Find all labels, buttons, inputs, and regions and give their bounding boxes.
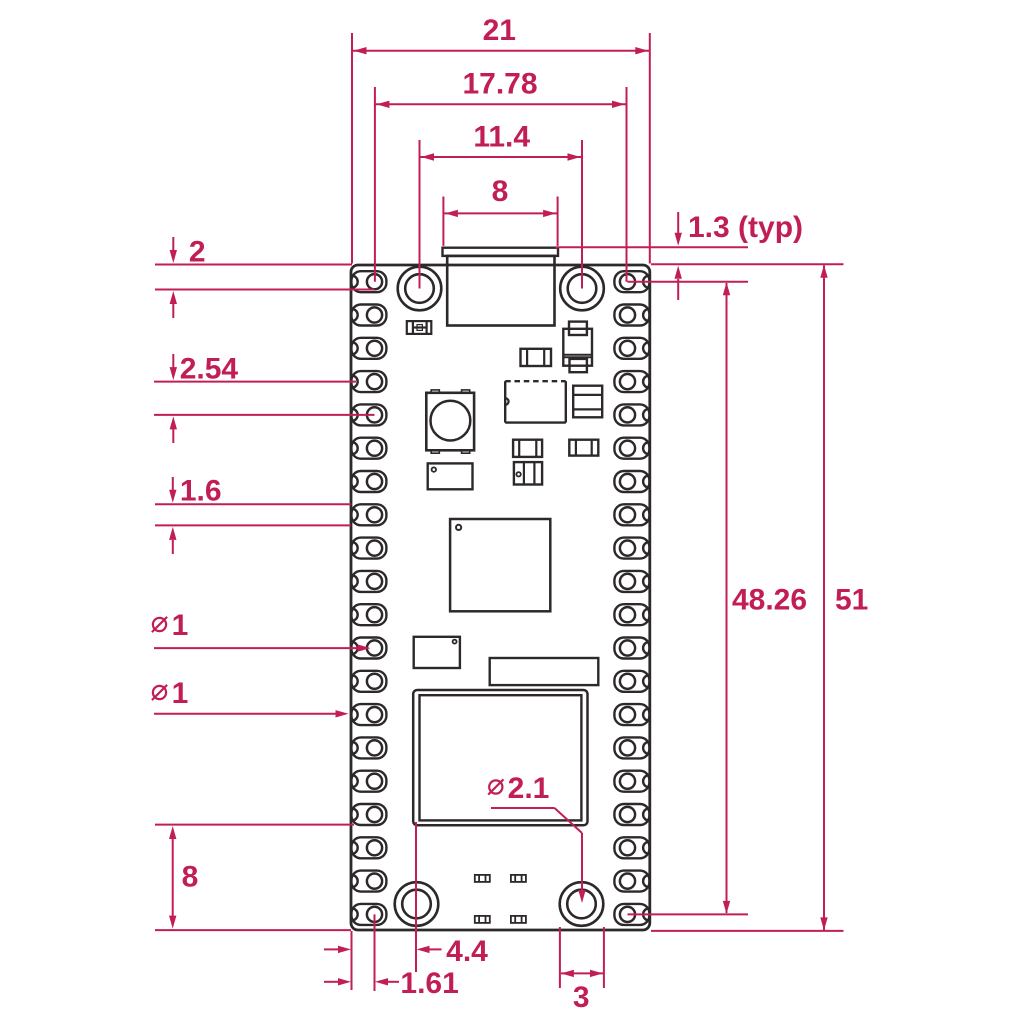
svg-text:1.6: 1.6 — [180, 475, 222, 508]
svg-text:8: 8 — [182, 861, 199, 894]
svg-text:2: 2 — [189, 236, 206, 269]
svg-text:11.4: 11.4 — [473, 121, 530, 154]
svg-text:3: 3 — [573, 981, 590, 1014]
svg-text:1: 1 — [172, 677, 189, 710]
svg-text:2.54: 2.54 — [180, 353, 239, 386]
svg-text:17.78: 17.78 — [462, 68, 537, 101]
svg-text:1.3 (typ): 1.3 (typ) — [688, 211, 803, 244]
svg-text:48.26: 48.26 — [732, 584, 807, 617]
svg-text:1.61: 1.61 — [400, 967, 458, 1000]
svg-text:21: 21 — [483, 14, 516, 47]
svg-text:8: 8 — [492, 175, 509, 208]
svg-text:51: 51 — [835, 584, 868, 617]
svg-text:1: 1 — [172, 609, 189, 642]
svg-text:4.4: 4.4 — [446, 935, 488, 968]
svg-text:2.1: 2.1 — [508, 772, 550, 805]
